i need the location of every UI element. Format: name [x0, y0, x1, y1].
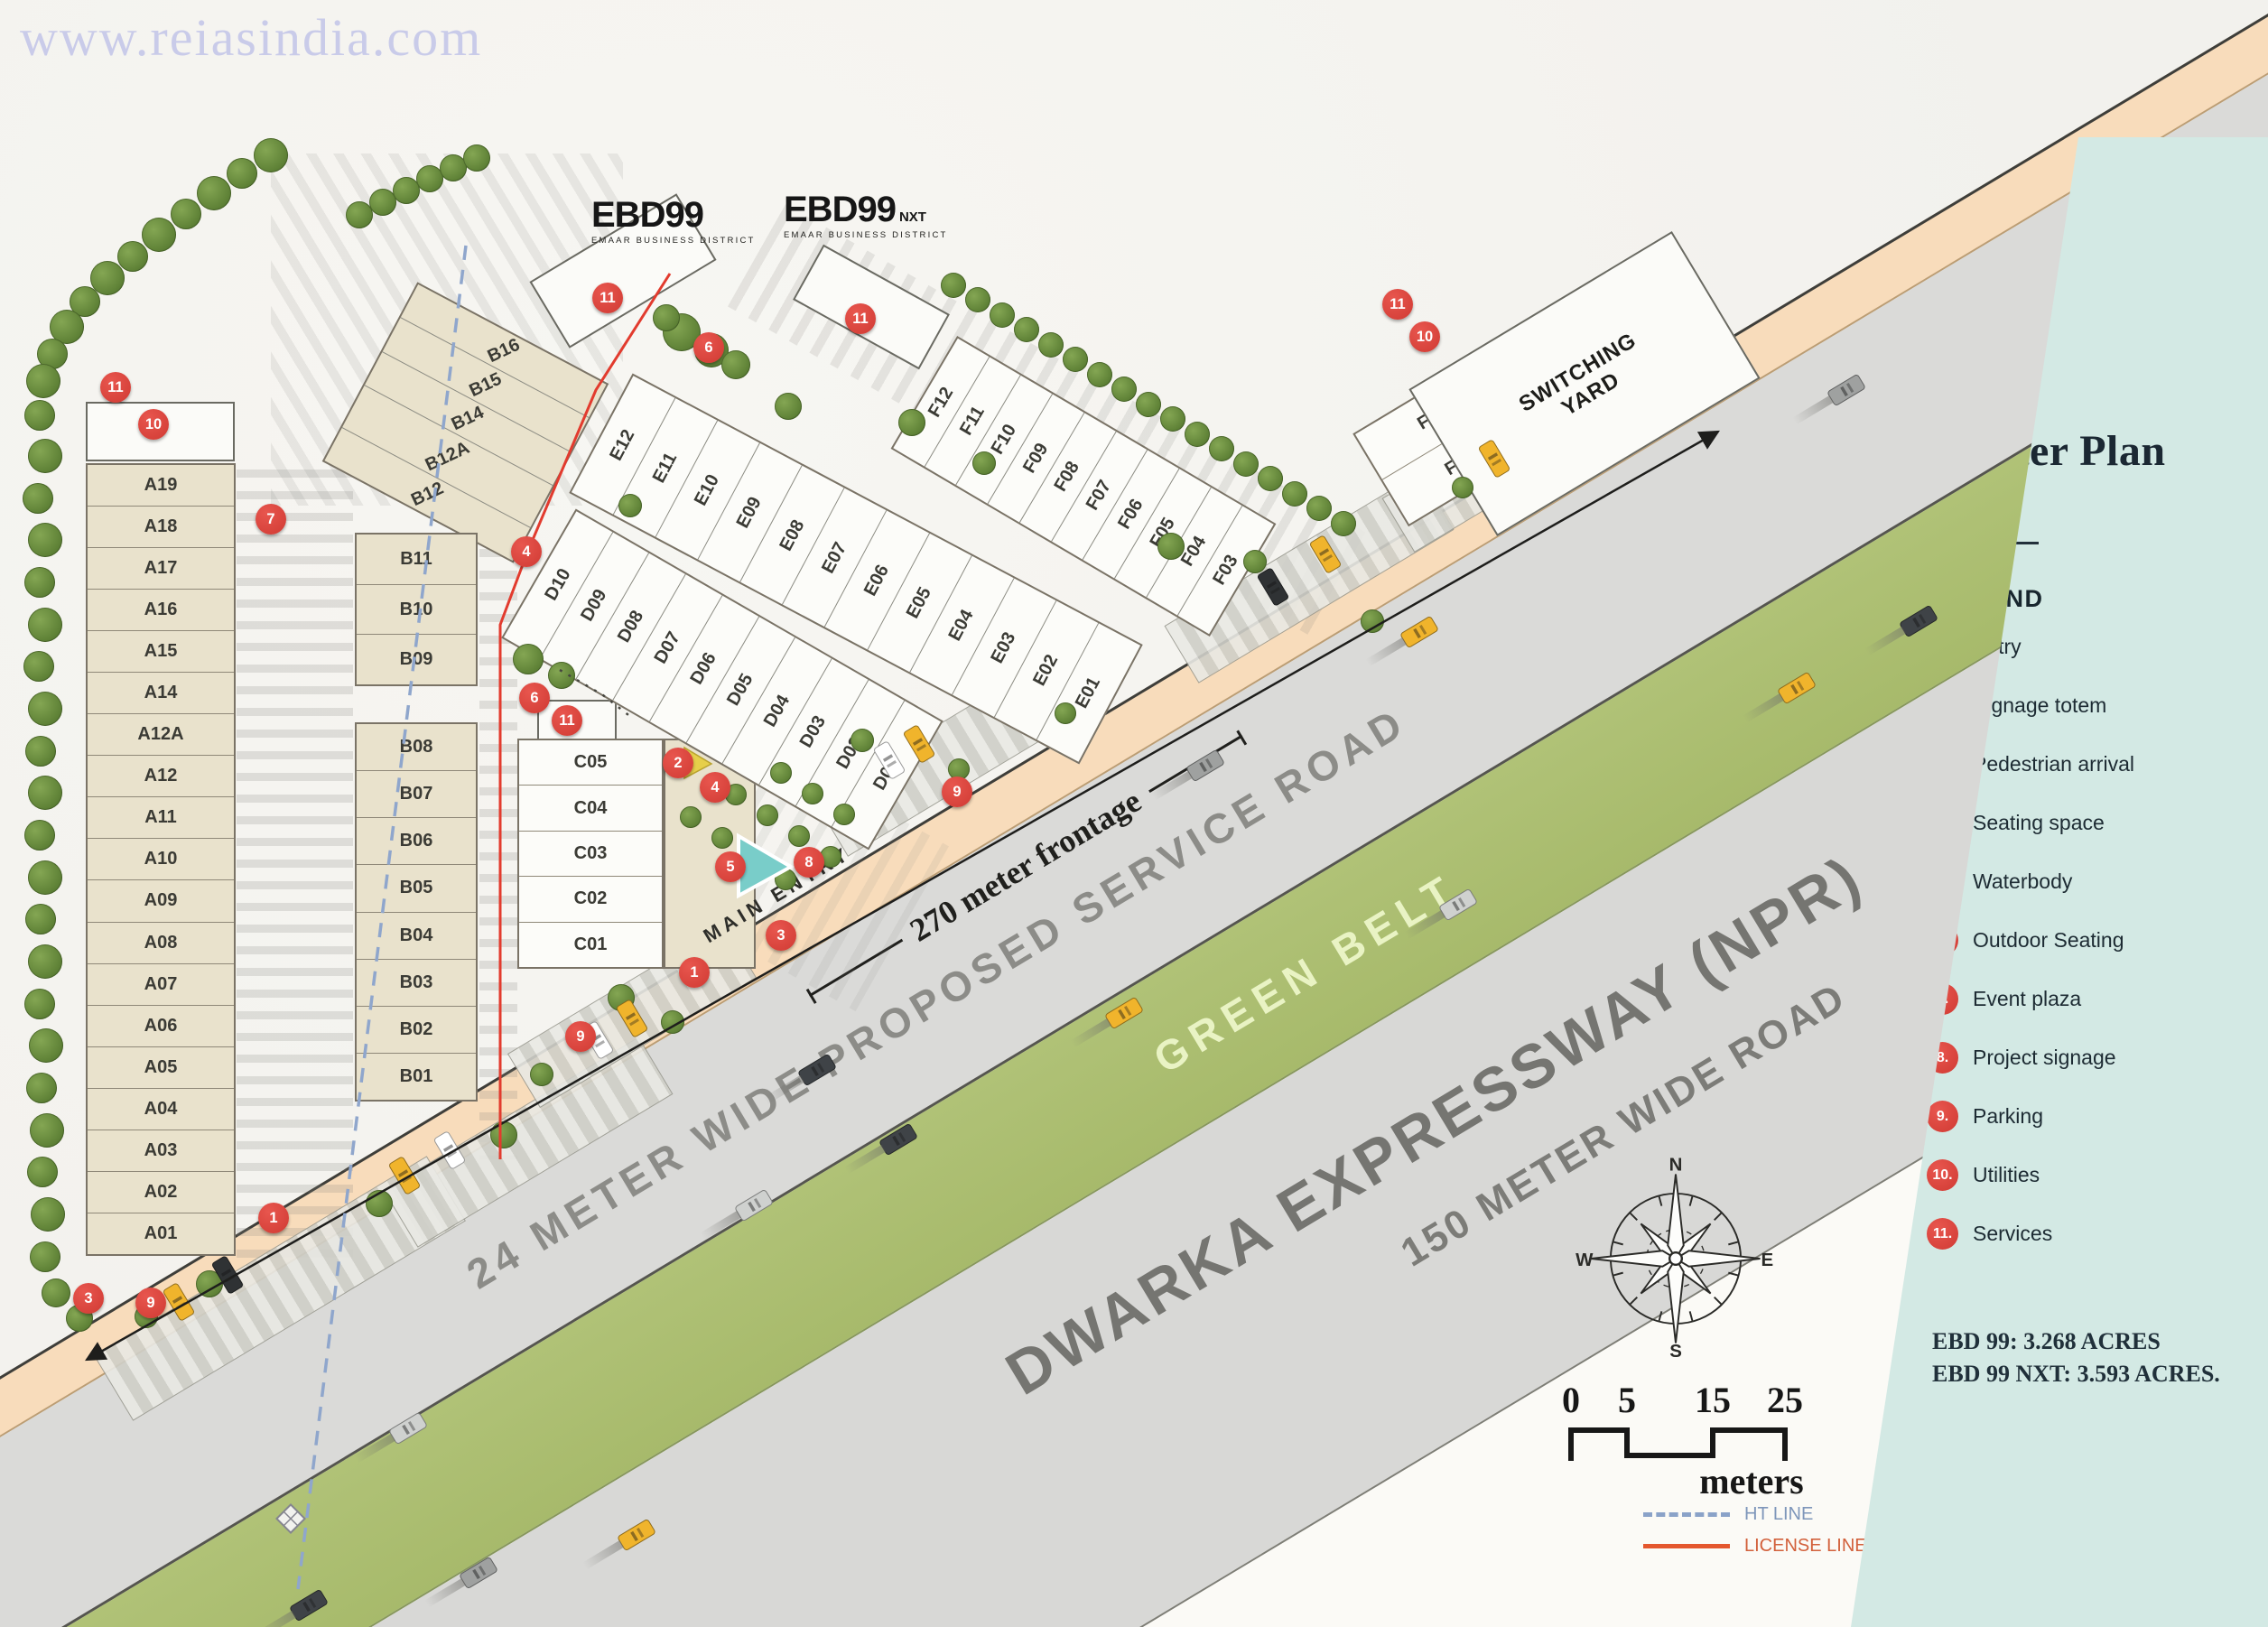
map-marker: 3: [766, 920, 796, 951]
tree-icon: [26, 1073, 57, 1103]
tree-icon: [25, 736, 56, 767]
tree-icon: [1055, 702, 1076, 724]
tree-icon: [29, 1028, 63, 1063]
plot: A05: [88, 1047, 234, 1089]
map-marker: 9: [135, 1288, 166, 1318]
tree-icon: [513, 644, 544, 674]
scale-tick-0: 0: [1562, 1380, 1580, 1420]
tree-icon: [254, 138, 288, 172]
tree-icon: [30, 1241, 60, 1272]
tree-icon: [721, 350, 750, 379]
map-marker: 11: [845, 303, 876, 334]
legend-item-label: Event plaza: [1973, 987, 2081, 1011]
plot: C02: [519, 877, 662, 922]
plot: A14: [88, 673, 234, 714]
plot: A11: [88, 797, 234, 839]
scale-tick-25: 25: [1767, 1380, 1803, 1420]
ebd99-nxt-logo-tagline: EMAAR BUSINESS DISTRICT: [784, 231, 948, 240]
scale-tick-15: 15: [1695, 1380, 1731, 1420]
tree-icon: [171, 199, 201, 229]
map-marker: 9: [565, 1021, 596, 1052]
tree-icon: [618, 494, 642, 517]
tree-icon: [28, 692, 62, 726]
plot: A19: [88, 465, 234, 507]
tree-icon: [775, 869, 796, 890]
tree-icon: [1452, 477, 1473, 498]
master-plan-page: 270 meter frontage 24 METER WIDE PROPOSE…: [0, 0, 2268, 1627]
compass-e: E: [1761, 1250, 1773, 1270]
tree-icon: [990, 302, 1015, 328]
tree-icon: [28, 523, 62, 557]
legend-item-label: Project signage: [1973, 1046, 2116, 1070]
plot: A07: [88, 964, 234, 1006]
scale-unit: meters: [1699, 1461, 1803, 1501]
tree-icon: [27, 1157, 58, 1187]
tree-icon: [23, 651, 54, 682]
nxt-suffix: NXT: [899, 209, 926, 225]
ebd99-acreage: EBD 99: 3.268 ACRES: [1932, 1325, 2220, 1358]
scale-tick-5: 5: [1618, 1380, 1636, 1420]
tree-icon: [28, 439, 62, 473]
legend-item-label: Services: [1973, 1222, 2052, 1246]
license-line-label: LICENSE LINE: [1744, 1536, 1867, 1557]
plot: C05: [519, 740, 662, 786]
map-marker: 10: [1409, 321, 1440, 352]
tree-icon: [26, 364, 60, 398]
plot: B11: [357, 535, 476, 585]
tree-icon: [548, 662, 575, 689]
plot: B10: [357, 585, 476, 636]
legend-item-label: Utilities: [1973, 1163, 2040, 1187]
tree-icon: [28, 608, 62, 642]
tree-icon: [24, 567, 55, 598]
plot: B07: [357, 771, 476, 818]
map-marker: 1: [258, 1203, 289, 1233]
ebd99-logo: EBD99 EMAAR BUSINESS DISTRICT: [591, 197, 756, 246]
tree-icon: [227, 158, 257, 189]
plot: B06: [357, 818, 476, 865]
tree-icon: [28, 776, 62, 810]
ht-line-legend: HT LINE: [1643, 1504, 1867, 1525]
tree-icon: [1258, 466, 1283, 491]
plot: A18: [88, 507, 234, 548]
plot: C03: [519, 832, 662, 877]
plot-block-b-lower: B08B07B06B05B04B03B02B01: [355, 722, 478, 1102]
tree-icon: [25, 904, 56, 934]
tree-icon: [24, 989, 55, 1019]
tree-icon: [743, 848, 765, 869]
tree-icon: [1087, 362, 1112, 387]
compass-rose-icon: N E S W: [1575, 1157, 1777, 1360]
plot: B08: [357, 724, 476, 771]
tree-icon: [770, 762, 792, 784]
tree-icon: [366, 1190, 393, 1217]
tree-icon: [850, 729, 874, 752]
tree-icon: [1136, 392, 1161, 417]
legend-item: 9. Parking: [1927, 1087, 2134, 1146]
tree-icon: [197, 176, 231, 210]
plot: B09: [357, 635, 476, 684]
tree-icon: [142, 218, 176, 252]
plot: A10: [88, 839, 234, 880]
map-marker: 6: [519, 683, 550, 713]
acreage-note: EBD 99: 3.268 ACRES EBD 99 NXT: 3.593 AC…: [1932, 1325, 2220, 1391]
map-marker: 8: [794, 847, 824, 878]
legend-item-label: Seating space: [1973, 811, 2105, 835]
plot: A09: [88, 880, 234, 922]
tree-icon: [24, 820, 55, 851]
plot: C04: [519, 786, 662, 831]
tree-icon: [757, 804, 778, 826]
map-marker: 7: [256, 504, 286, 535]
map-marker: 2: [663, 748, 693, 778]
legend-item: 11. Services: [1927, 1204, 2134, 1263]
map-marker: 11: [552, 705, 582, 736]
scale-bar: 0 5 15 25 meters: [1558, 1376, 1856, 1502]
plot: A12: [88, 756, 234, 797]
tree-icon: [24, 400, 55, 431]
plot: A15: [88, 631, 234, 673]
plot: A03: [88, 1130, 234, 1172]
license-line-legend: LICENSE LINE: [1643, 1536, 1867, 1557]
map-marker: 9: [942, 776, 972, 807]
map-marker: 6: [693, 332, 724, 363]
tree-icon: [31, 1197, 65, 1232]
tree-icon: [1282, 481, 1307, 507]
plot: A04: [88, 1089, 234, 1130]
legend-number-badge: 10.: [1927, 1159, 1958, 1191]
map-marker: 4: [700, 772, 730, 803]
tree-icon: [1209, 436, 1234, 461]
tree-icon: [1111, 377, 1137, 402]
license-line-swatch: [1643, 1544, 1730, 1548]
plot: A08: [88, 923, 234, 964]
legend-item: 7. Event plaza: [1927, 970, 2134, 1028]
tree-icon: [463, 144, 490, 172]
tree-icon: [1157, 533, 1185, 560]
tree-icon: [23, 483, 53, 514]
tree-icon: [788, 825, 810, 847]
tree-icon: [28, 944, 62, 979]
tree-icon: [1185, 422, 1210, 447]
tree-icon: [680, 806, 702, 828]
tree-icon: [28, 860, 62, 895]
scale-bar-line: [1571, 1430, 1785, 1461]
ebd99-nxt-acreage: EBD 99 NXT: 3.593 ACRES.: [1932, 1358, 2220, 1390]
plot-block-a: A19A18A17A16A15A14A12AA12A11A10A09A08A07…: [86, 463, 236, 1256]
tree-icon: [833, 804, 855, 825]
tree-icon: [898, 409, 925, 436]
compass-s: S: [1669, 1341, 1682, 1360]
ebd99-nxt-logo-text: EBD99: [784, 190, 896, 229]
plot: A17: [88, 548, 234, 590]
map-marker: 11: [1382, 289, 1413, 320]
ebd99-logo-tagline: EMAAR BUSINESS DISTRICT: [591, 237, 756, 246]
legend-item-label: Outdoor Seating: [1973, 928, 2124, 953]
plot: A12A: [88, 714, 234, 756]
legend-number-badge: 11.: [1927, 1218, 1958, 1250]
legend-item-label: Waterbody: [1973, 869, 2072, 894]
plot: B05: [357, 865, 476, 912]
compass-n: N: [1669, 1157, 1683, 1176]
legend-item-label: Parking: [1973, 1104, 2043, 1129]
ebd99-logo-text: EBD99: [591, 195, 703, 235]
plot: A02: [88, 1172, 234, 1213]
map-marker: 1: [679, 957, 710, 988]
tree-icon: [1361, 609, 1384, 633]
plot: C01: [519, 923, 662, 967]
tree-icon: [117, 241, 148, 272]
tree-icon: [802, 783, 823, 804]
tree-icon: [775, 393, 802, 420]
tree-icon: [530, 1063, 553, 1086]
tree-icon: [1306, 496, 1332, 521]
legend-number-badge: 9.: [1927, 1101, 1958, 1132]
tree-icon: [490, 1121, 517, 1148]
map-marker: 11: [100, 372, 131, 403]
map-marker: 10: [138, 409, 169, 440]
tree-icon: [972, 451, 996, 475]
paving-hatch: [237, 470, 353, 1264]
line-type-legend: HT LINE LICENSE LINE: [1643, 1504, 1867, 1557]
legend-item-label: Pedestrian arrival: [1973, 752, 2134, 776]
tree-icon: [1160, 406, 1185, 432]
plot: A01: [88, 1213, 234, 1254]
ht-line-swatch: [1643, 1512, 1730, 1517]
plot: B04: [357, 913, 476, 960]
plot-block-c: C05C04C03C02C01: [517, 739, 664, 969]
watermark: www.reiasindia.com: [20, 7, 482, 68]
plot: B02: [357, 1007, 476, 1054]
plot: B03: [357, 960, 476, 1007]
tree-icon: [1243, 550, 1267, 573]
plot: B01: [357, 1054, 476, 1100]
map-marker: 4: [511, 536, 542, 567]
tree-icon: [965, 287, 990, 312]
tree-icon: [1331, 511, 1356, 536]
tree-icon: [1063, 347, 1088, 372]
compass-w: W: [1576, 1250, 1594, 1270]
plot: A16: [88, 590, 234, 631]
legend-item: 8. Project signage: [1927, 1028, 2134, 1087]
plot-block-b-upper: B11B10B09: [355, 533, 478, 686]
map-marker: 11: [592, 283, 623, 313]
tree-icon: [1038, 332, 1064, 358]
tree-icon: [42, 1278, 70, 1307]
map-marker: 5: [715, 851, 746, 882]
ht-line-label: HT LINE: [1744, 1504, 1813, 1525]
legend-item: 10. Utilities: [1927, 1146, 2134, 1204]
tree-icon: [1014, 317, 1039, 342]
tree-icon: [30, 1113, 64, 1148]
ebd99-nxt-logo: EBD99NXT EMAAR BUSINESS DISTRICT: [784, 191, 948, 240]
map-marker: 3: [73, 1283, 104, 1314]
plot: A06: [88, 1006, 234, 1047]
tree-icon: [1233, 451, 1259, 477]
tree-icon: [653, 304, 680, 331]
tree-icon: [941, 273, 966, 298]
tree-icon: [711, 827, 733, 849]
switching-yard-label: SWITCHING YARD: [1494, 316, 1675, 451]
tree-icon: [661, 1010, 684, 1034]
